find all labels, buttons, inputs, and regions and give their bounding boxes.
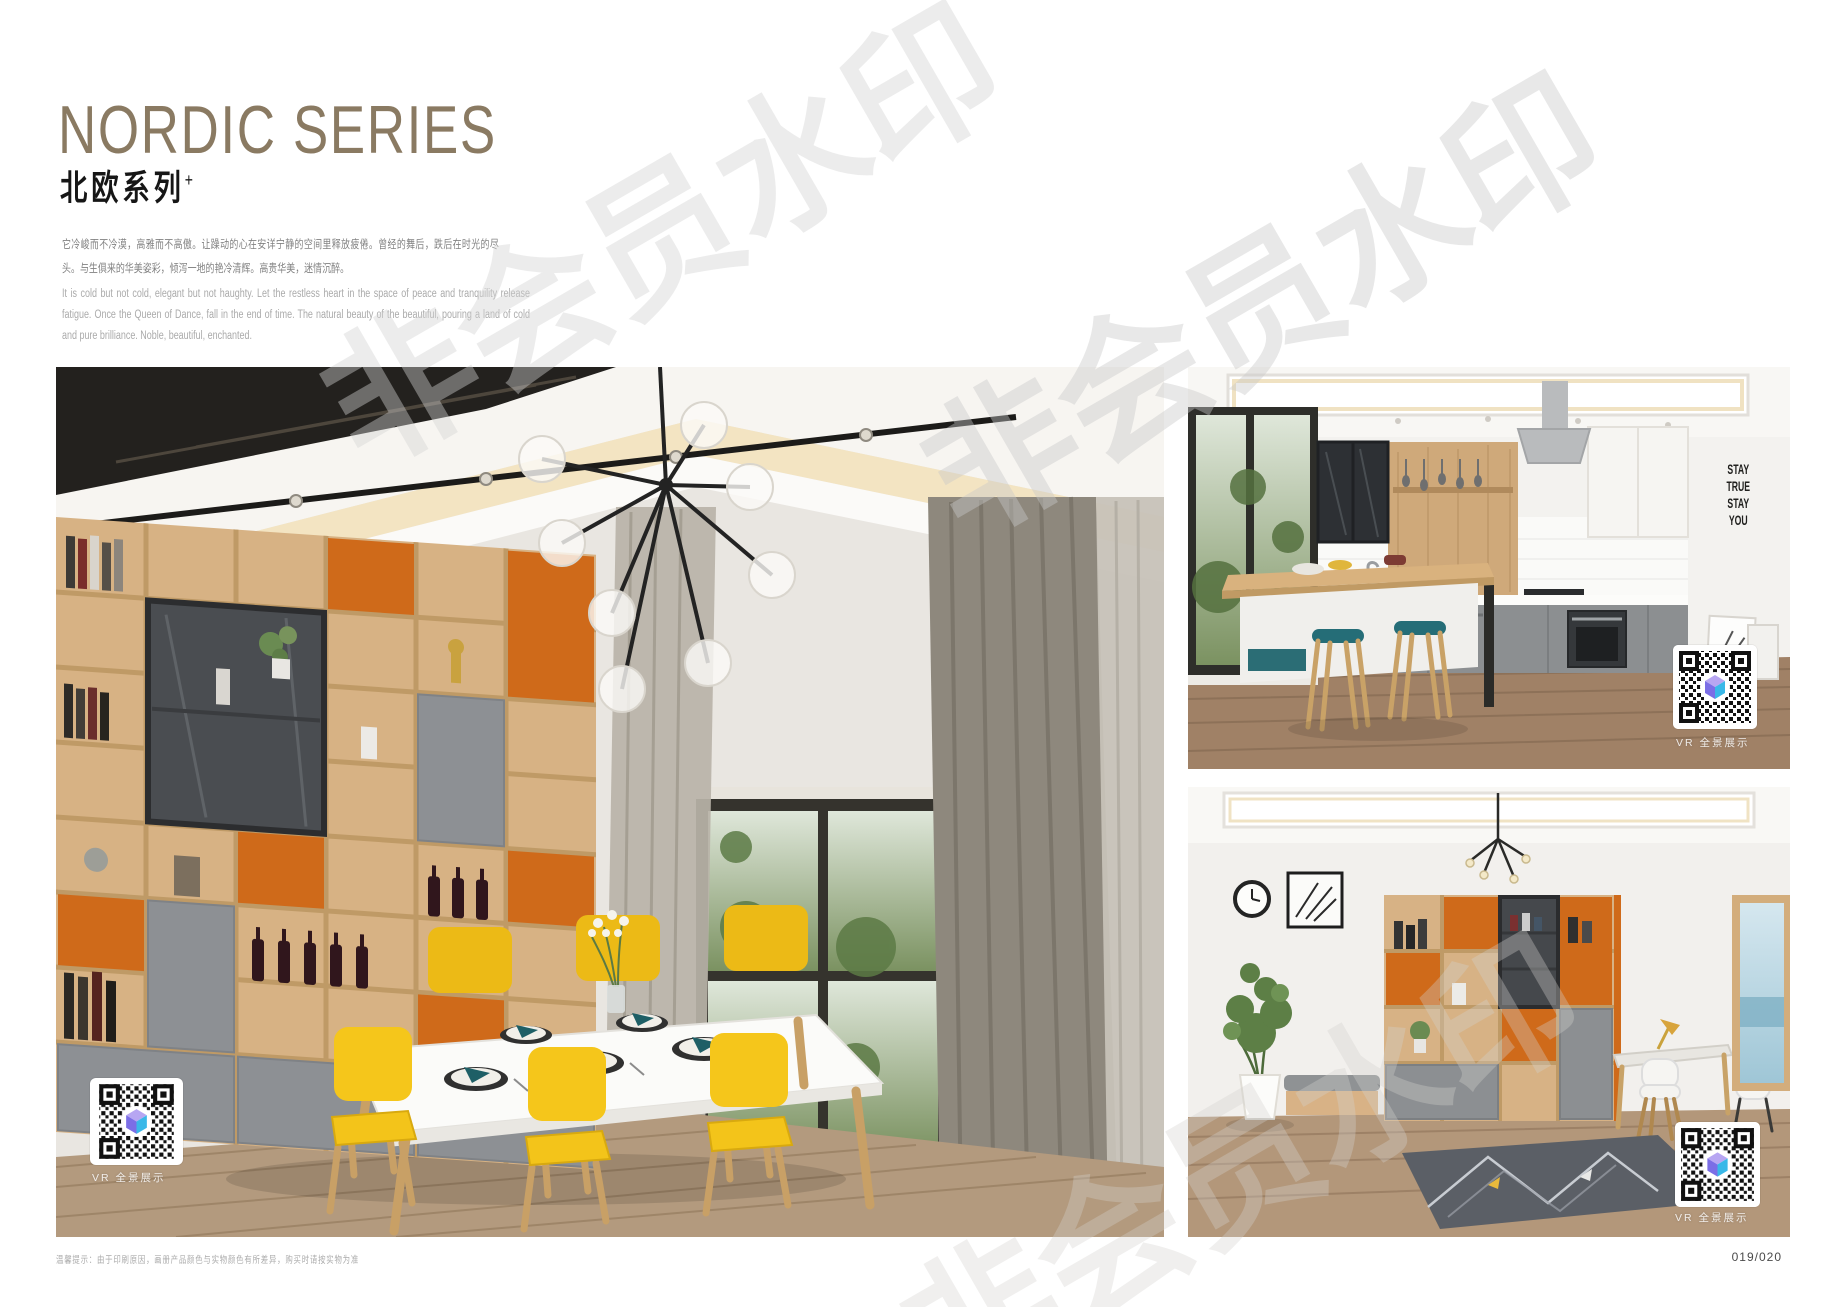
series-description-zh: 它冷峻而不冷漠，高雅而不高傲。让躁动的心在安详宁静的空间里释放疲倦。曾经的舞后，… bbox=[62, 233, 499, 281]
vr-qr-code bbox=[90, 1078, 183, 1165]
study-room-photo: VR 全景展示 bbox=[1188, 787, 1790, 1237]
glass-display-cabinet bbox=[148, 600, 324, 833]
catalog-page: NORDIC SERIES 北欧系列+ 它冷峻而不冷漠，高雅而不高傲。让躁动的心… bbox=[0, 0, 1836, 1307]
bench bbox=[1284, 1075, 1380, 1115]
study-ceiling bbox=[1188, 787, 1790, 843]
study-wall-unit bbox=[1384, 895, 1621, 1121]
wall-clock bbox=[1235, 882, 1269, 916]
vr-qr-code bbox=[1675, 1122, 1760, 1207]
wall-art-text: STAY TRUE STAY YOU bbox=[1724, 461, 1753, 529]
abstract-art-frame bbox=[1288, 873, 1342, 927]
dining-room-photo: VR 全景展示 bbox=[56, 367, 1164, 1237]
series-title-zh: 北欧系列+ bbox=[60, 168, 193, 210]
page-number: 019/020 bbox=[1732, 1250, 1782, 1264]
glass-display bbox=[1500, 897, 1558, 1007]
series-title-en: NORDIC SERIES bbox=[58, 96, 497, 164]
cooktop bbox=[1524, 589, 1584, 595]
series-title-zh-text: 北欧系列 bbox=[60, 169, 185, 208]
print-disclaimer: 温馨提示：由于印刷原因，画册产品颜色与实物颜色有所差异，购买时请按实物为准 bbox=[56, 1252, 359, 1266]
vr-qr-code bbox=[1673, 645, 1757, 729]
series-description-en: It is cold but not cold, elegant but not… bbox=[62, 284, 530, 347]
vr-panorama-label: VR 全景展示 bbox=[1676, 735, 1750, 750]
vr-panorama-label: VR 全景展示 bbox=[92, 1170, 166, 1185]
series-title-plus: + bbox=[185, 170, 193, 190]
kitchen-photo: STAY TRUE STAY YOU VR 全景展示 bbox=[1188, 367, 1790, 769]
built-in-oven bbox=[1568, 611, 1626, 667]
vr-panorama-label: VR 全景展示 bbox=[1675, 1210, 1749, 1225]
study-window bbox=[1732, 895, 1790, 1091]
